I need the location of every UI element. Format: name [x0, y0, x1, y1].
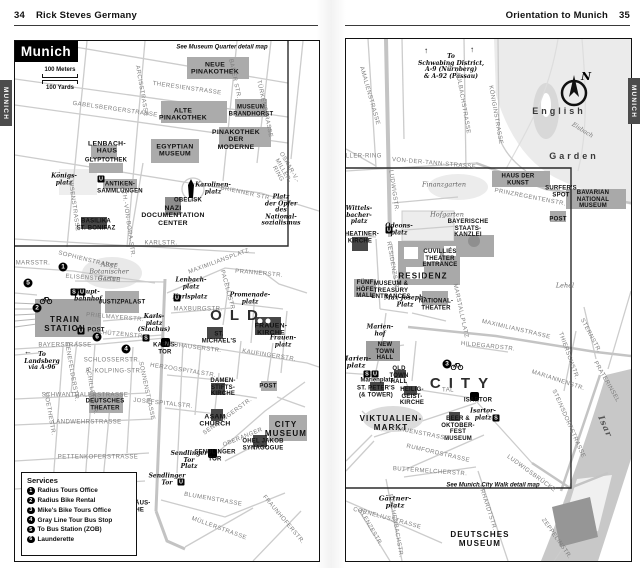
map-label: NAZI DOCUMENTATION CENTER: [141, 205, 204, 227]
scale-meters-line: [42, 74, 78, 78]
map-label: CUVILLIÉS THEATER ENTRANCE: [423, 249, 458, 269]
map-label: Frauen- platz: [270, 335, 296, 348]
map-label: BUTTERMELCHERSTR.: [393, 466, 468, 478]
compass-north-label: N: [580, 70, 592, 83]
map-label: Eisbach: [570, 122, 594, 140]
map-label: MAXIMILIANSTRASSE: [481, 319, 551, 341]
map-label: LENBACH- HAUS: [88, 141, 126, 156]
map-label: To Schwabing District, A-9 (Nürnberg) & …: [418, 54, 484, 80]
map-label: LUISENSTRASSE: [66, 176, 80, 232]
service-marker-5: 5: [24, 279, 33, 288]
transit-u-icon: U: [98, 176, 105, 183]
map-label: THIERSCHSTR.: [556, 331, 579, 380]
map-label: A.-KOLPING-STR.: [86, 369, 143, 376]
scale-bar: 100 Meters 100 Yards: [33, 67, 87, 91]
map-label: OSKAR-V.-MILLER-RING: [265, 150, 300, 191]
map-label: OLD TOWN HALL: [389, 366, 408, 386]
left-edge-tab: MUNICH: [0, 80, 12, 126]
map-label: HERZOGSPITALSTR.: [150, 363, 217, 380]
map-label: DEUTSCHES MUSEUM: [450, 531, 509, 549]
map-label: Platz der Opfer des National- sozialismu…: [262, 195, 301, 228]
map-label: GLYPTOTHEK: [85, 158, 127, 165]
transit-u-icon: U: [372, 371, 379, 378]
map-label: FÜNF HÖFE MALL: [356, 280, 373, 300]
map-label: BAVARIAN NATIONAL MUSEUM: [574, 190, 612, 210]
map-label: STERNSTR.: [578, 318, 602, 355]
transit-u-icon: U: [386, 227, 393, 234]
scale-yards-label: 100 Yards: [33, 85, 87, 91]
service-marker-1: 1: [59, 263, 68, 272]
map-label: JUSTIZPALAST: [99, 300, 146, 307]
map-label: BLUMENSTRASSE: [183, 492, 242, 509]
map-label: JOSEFSPITALSTR.: [133, 398, 193, 411]
map-label: Wittels- bacher- platz: [346, 206, 372, 226]
map-label: ST. MICHAEL'S: [202, 331, 237, 344]
transit-u-icon: U: [79, 289, 86, 296]
left-page-title: Rick Steves Germany: [36, 10, 137, 21]
map-label: PETTENKOFERSTRASSE: [58, 455, 138, 462]
map-label: BAYERISCHE STAATS- KANZLEI: [448, 219, 489, 239]
map-label: MÜLLERSTRASSE: [191, 516, 248, 542]
map-label: ISARTOR: [464, 398, 492, 405]
map-label: Marien- platz: [345, 356, 371, 371]
bike-icon: [40, 292, 53, 308]
transit-s-icon: S: [364, 371, 371, 378]
map-label: Marien- hof: [367, 324, 394, 337]
map-label: Sendlinger Tor Platz: [171, 451, 208, 471]
map-label: HILDEGARDSTR.: [461, 341, 516, 353]
map-label: SURFER'S SPOT: [545, 185, 577, 198]
map-label: HEILIG- GEIST- KIRCHE: [400, 387, 424, 407]
map-label: FRAUNHOFERSTR.: [261, 494, 306, 545]
map-label: ERHARDTSTR.: [477, 484, 498, 531]
transit-u-icon: U: [178, 479, 185, 486]
map-label: SONNENSTRASSE: [137, 361, 156, 421]
map-label: KAUFINGERSTR.: [242, 348, 297, 363]
legend-item-label: Mike's Bike Tours Office: [38, 507, 112, 514]
transit-s-icon: S: [143, 335, 150, 342]
legend-item: 3Mike's Bike Tours Office: [27, 507, 131, 515]
transit-s-icon: S: [493, 415, 500, 422]
map-label: LANDWEHRSTRASSE: [52, 420, 121, 427]
map-label: CITY MUSEUM: [265, 421, 307, 439]
book-spread: 34Rick Steves Germany Orientation to Mun…: [0, 0, 640, 568]
map-label: SCHLOSSERSTR.: [84, 358, 141, 365]
services-legend: Services 1Radius Tours Office2Radius Bik…: [21, 472, 137, 556]
map-label: PINAKOTHEK DER MODERNE: [212, 129, 260, 151]
right-page-number: 35: [619, 10, 630, 21]
map-label: POST: [259, 384, 276, 391]
munich-east-map: To Schwabing District, A-9 (Nürnberg) & …: [345, 38, 632, 562]
map-label: Lenbach- platz: [176, 277, 207, 290]
legend-item-label: Radius Tours Office: [38, 487, 98, 494]
map-label: See Museum Quarter detail map: [176, 45, 267, 52]
legend-marker-3: 3: [27, 507, 35, 515]
map-label: ZEPPELINSTR.: [540, 517, 573, 560]
left-page-header: 34Rick Steves Germany: [14, 10, 137, 21]
map-label: Promenade- platz: [230, 292, 271, 305]
legend-item: 1Radius Tours Office: [27, 487, 131, 495]
right-edge-tab: MUNICH: [628, 78, 640, 124]
legend-marker-4: 4: [27, 516, 35, 524]
transit-s-icon: S: [71, 289, 78, 296]
map-label: OHEL JAKOB SYNAGOGUE: [242, 438, 283, 451]
map-label: VON-DER-TANN-STRASSE: [392, 157, 477, 171]
map-label: BASILIKA ST. BONIFAZ: [77, 218, 116, 231]
right-map-labels: To Schwabing District, A-9 (Nürnberg) & …: [346, 39, 631, 561]
right-page-header: Orientation to Munich35: [345, 10, 630, 21]
legend-item-label: Gray Line Tour Bus Stop: [38, 517, 113, 524]
map-label: MARSTALLPLATZ: [451, 283, 469, 338]
map-label: HAUS DER KUNST: [502, 173, 535, 186]
right-page-title: Orientation to Munich: [506, 10, 608, 21]
map-label: NATIONAL- THEATER: [419, 298, 453, 311]
legend-item-label: Radius Bike Rental: [38, 497, 96, 504]
map-label: LUDWIGSTR.: [387, 170, 399, 213]
map-label: ASAM CHURCH: [199, 414, 230, 429]
map-title: Munich: [14, 40, 78, 62]
legend-marker-2: 2: [27, 497, 35, 505]
map-label: See Munich City Walk detail map: [446, 483, 539, 490]
map-label: ST. PETER'S (& TOWER): [357, 385, 395, 398]
map-label: CITY: [430, 376, 496, 393]
legend-title: Services: [27, 476, 131, 485]
service-marker-6: 6: [93, 333, 102, 342]
bike-icon: [451, 358, 464, 374]
legend-item: 5To Bus Station (ZOB): [27, 526, 131, 534]
legend-rows: 1Radius Tours Office2Radius Bike Rental3…: [27, 487, 131, 543]
map-label: Finanzgarten: [422, 181, 466, 188]
map-label: OBELISK: [174, 198, 202, 205]
scale-yards-line: [42, 80, 78, 84]
map-label: Garden: [549, 152, 599, 162]
scale-meters-label: 100 Meters: [33, 67, 87, 73]
service-marker-4: 4: [122, 345, 131, 354]
arrow-up-icon: ↑: [470, 46, 474, 54]
map-label: KARLSTR.: [145, 241, 178, 248]
munich-west-map: See Museum Quarter detail mapNEUE PINAKO…: [14, 40, 320, 562]
map-label: RUMFORDSTRASSE: [406, 443, 471, 464]
legend-item-label: To Bus Station (ZOB): [38, 526, 102, 533]
map-label: MARSSTR.: [16, 261, 51, 268]
arrow-left-icon: ←: [24, 348, 32, 356]
left-header-rule: [14, 25, 318, 26]
map-label: DAMEN- STIFTS- KIRCHE: [210, 378, 235, 398]
map-label: ALTE PINAKOTHEK: [159, 108, 207, 123]
transit-u-icon: U: [174, 295, 181, 302]
transit-u-icon: U: [78, 328, 85, 335]
map-label: PRANNERSTR.: [235, 269, 283, 280]
map-label: BARER STR.: [227, 58, 242, 99]
arrow-up-icon: ↑: [424, 47, 428, 55]
map-label: STEINSDORFSTRASSE: [550, 389, 586, 460]
map-label: THEATINER- KIRCHE: [345, 231, 379, 244]
map-label: RESIDENZ: [398, 273, 447, 282]
left-page-number: 34: [14, 10, 25, 21]
map-label: PRATERINSEL: [592, 360, 621, 403]
legend-item: 4Gray Line Tour Bus Stop: [27, 516, 131, 524]
map-label: EGYPTIAN MUSEUM: [156, 144, 193, 159]
map-label: PRIELMAYERSTR.: [86, 312, 145, 324]
map-label: Lehel: [556, 282, 574, 289]
right-edge-tab-label: MUNICH: [631, 84, 638, 117]
map-label: AMALIENSTRASSE: [357, 66, 380, 126]
map-label: Hofgarten: [430, 211, 464, 218]
map-label: NEW TOWN HALL: [375, 342, 394, 362]
map-label: Karls- platz (Stachus): [138, 314, 170, 334]
map-label: DEUTSCHES THEATER: [86, 398, 125, 411]
map-label: KÖNIGINSTRASSE: [487, 85, 504, 145]
map-label: THERESIENSTRASSE: [152, 81, 222, 97]
compass-icon: N: [556, 67, 592, 114]
right-header-rule: [345, 25, 630, 26]
map-label: Isar: [595, 415, 613, 440]
legend-marker-6: 6: [27, 536, 35, 544]
legend-item: 2Radius Bike Rental: [27, 497, 131, 505]
legend-item: 6Launderette: [27, 536, 131, 544]
legend-item-label: Launderette: [38, 536, 75, 543]
legend-marker-1: 1: [27, 487, 35, 495]
page-gutter: [316, 0, 346, 568]
map-label: TAL: [442, 388, 454, 395]
left-edge-tab-label: MUNICH: [3, 86, 10, 119]
map-label: MILLER-RING: [345, 154, 382, 161]
legend-marker-5: 5: [27, 526, 35, 534]
map-label: POST: [549, 217, 566, 224]
